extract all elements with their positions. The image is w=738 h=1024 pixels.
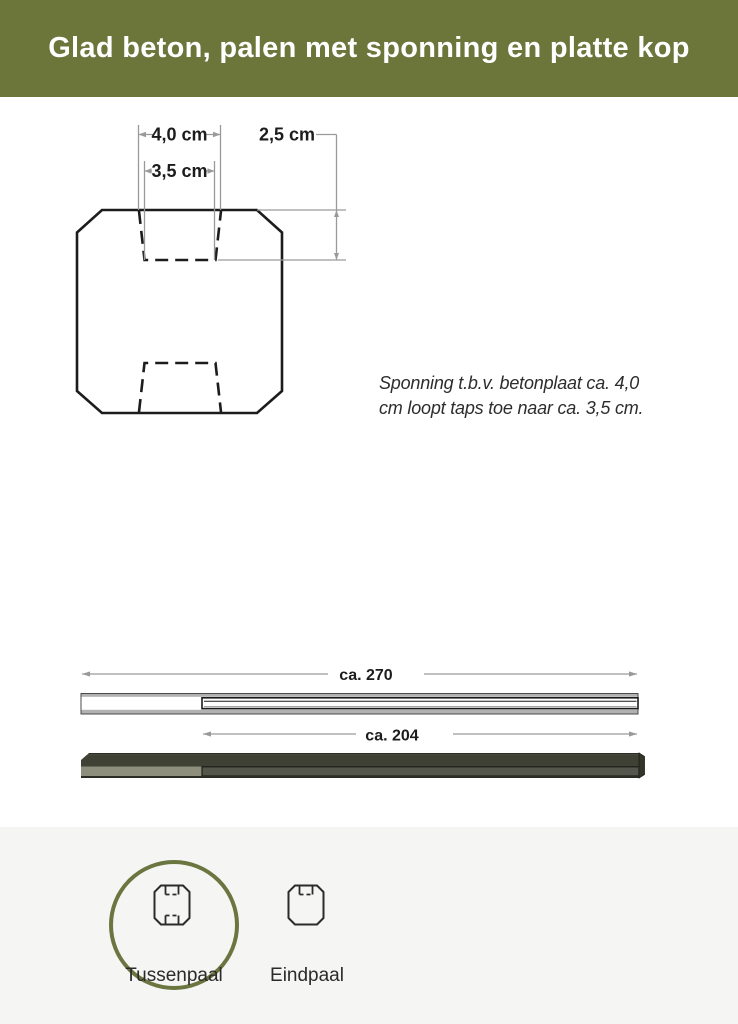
dark-post-bottom-edge (81, 776, 639, 778)
dimension-arrows (139, 132, 340, 260)
page-title: Glad beton, palen met sponning en platte… (48, 32, 690, 65)
bottom-rebate-dashed (139, 363, 221, 412)
tussenpaal-icon (153, 884, 191, 926)
product-diagram-page: Glad beton, palen met sponning en platte… (0, 0, 738, 1024)
variant-selector: Tussenpaal Eindpaal (0, 827, 738, 1024)
length-204-arrow-left (203, 731, 211, 736)
annotation-line-1: Sponning t.b.v. betonplaat ca. 4,0 (379, 371, 659, 396)
dark-post-top-face (81, 755, 639, 767)
octagon-outline (77, 210, 282, 413)
white-post-top-bevel (82, 694, 638, 697)
dim-label-top-width: 4,0 cm (151, 125, 207, 145)
length-270-arrow-right (629, 671, 637, 676)
dark-post-groove (202, 767, 639, 776)
dim-25-leader (316, 135, 337, 261)
white-post-drawing: ca. 270 (81, 667, 638, 714)
annotation-line-2: cm loopt taps toe naar ca. 3,5 cm. (379, 396, 659, 421)
length-270-arrow-left (82, 671, 90, 676)
dark-post-top-edge (81, 753, 639, 755)
variant-label-tussenpaal: Tussenpaal (109, 965, 239, 987)
technical-diagram: 4,0 cm 3,5 cm 2,5 cm ca. 270 ca. 204 (0, 97, 738, 827)
post-cross-section (77, 210, 282, 413)
eindpaal-icon (287, 884, 325, 926)
rebate-annotation: Sponning t.b.v. betonplaat ca. 4,0 cm lo… (379, 371, 659, 421)
variant-option-eindpaal[interactable]: Eindpaal (247, 860, 367, 990)
white-post-bottom-bevel (82, 710, 638, 714)
dark-post-end-cap (639, 753, 645, 778)
dimension-lines (139, 125, 347, 260)
dark-post-drawing: ca. 204 (81, 728, 645, 779)
length-204-arrow-right (629, 731, 637, 736)
variant-option-tussenpaal[interactable]: Tussenpaal (109, 860, 239, 990)
dim-label-taper-width: 3,5 cm (151, 161, 207, 181)
top-rebate-dashed (139, 211, 221, 260)
dim-label-depth: 2,5 cm (259, 125, 315, 145)
length-270-label: ca. 270 (339, 667, 392, 684)
variant-label-eindpaal: Eindpaal (247, 965, 367, 987)
length-204-label: ca. 204 (365, 728, 418, 745)
header-banner: Glad beton, palen met sponning en platte… (0, 0, 738, 97)
